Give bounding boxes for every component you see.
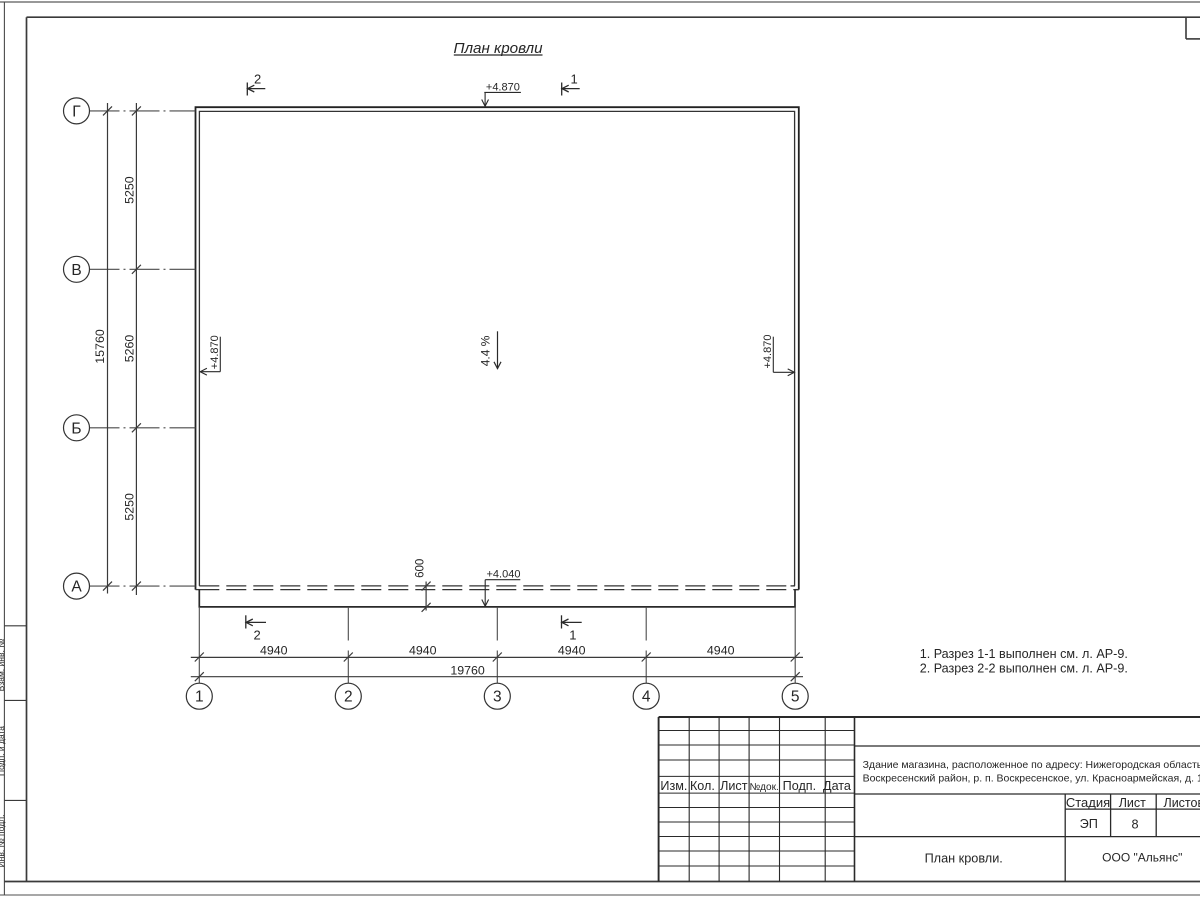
svg-text:600: 600 <box>414 559 426 578</box>
svg-text:Лист: Лист <box>1119 796 1146 810</box>
svg-text:4.4 %: 4.4 % <box>479 335 493 366</box>
svg-text:№док.: №док. <box>749 782 778 793</box>
svg-text:+4.870: +4.870 <box>209 335 221 369</box>
svg-text:+4.870: +4.870 <box>762 335 774 369</box>
svg-text:1. Разрез 1-1 выполнен см. л.: 1. Разрез 1-1 выполнен см. л. АР-9. <box>920 647 1128 661</box>
svg-text:19760: 19760 <box>450 663 485 677</box>
svg-text:Лист: Лист <box>720 779 748 793</box>
svg-text:5250: 5250 <box>123 493 137 521</box>
svg-text:3: 3 <box>493 689 502 706</box>
svg-text:4940: 4940 <box>260 644 288 658</box>
svg-text:+4.870: +4.870 <box>486 82 520 94</box>
svg-text:Здание магазина, расположенное: Здание магазина, расположенное по адресу… <box>863 759 1200 771</box>
svg-text:4940: 4940 <box>558 644 586 658</box>
svg-text:Воскресенский район, р. п. Вос: Воскресенский район, р. п. Воскресенское… <box>863 772 1200 784</box>
svg-text:Взам. инв. №: Взам. инв. № <box>0 639 6 692</box>
svg-text:5: 5 <box>791 689 800 706</box>
svg-text:План кровли.: План кровли. <box>925 852 1003 866</box>
svg-text:2: 2 <box>344 689 353 706</box>
svg-text:ООО "Альянс": ООО "Альянс" <box>1102 851 1182 865</box>
svg-text:4: 4 <box>642 689 651 706</box>
svg-text:В: В <box>71 262 81 279</box>
svg-text:Стадия: Стадия <box>1066 795 1110 810</box>
svg-text:8: 8 <box>1131 817 1138 831</box>
svg-text:ЭП: ЭП <box>1080 817 1098 831</box>
svg-text:Инв. № подл.: Инв. № подл. <box>0 815 6 868</box>
svg-text:1: 1 <box>571 72 578 87</box>
svg-text:Подп. и дата: Подп. и дата <box>0 726 6 776</box>
svg-text:Г: Г <box>72 103 81 120</box>
svg-text:Кол.: Кол. <box>690 779 715 793</box>
svg-text:15760: 15760 <box>93 329 107 364</box>
svg-text:4940: 4940 <box>707 644 735 658</box>
svg-text:1: 1 <box>569 628 576 643</box>
svg-text:1: 1 <box>195 689 204 706</box>
svg-text:Б: Б <box>71 420 81 437</box>
svg-text:А: А <box>71 579 82 596</box>
svg-text:Изм.: Изм. <box>660 779 687 793</box>
svg-text:2: 2 <box>254 72 261 87</box>
svg-text:+4.040: +4.040 <box>487 569 521 581</box>
svg-text:2: 2 <box>254 628 261 643</box>
svg-text:5250: 5250 <box>123 176 137 204</box>
svg-text:Листов: Листов <box>1164 796 1200 810</box>
svg-text:Дата: Дата <box>823 779 851 793</box>
svg-text:4940: 4940 <box>409 644 437 658</box>
svg-text:5260: 5260 <box>123 335 137 363</box>
svg-text:Подп.: Подп. <box>783 779 816 793</box>
svg-text:2. Разрез 2-2 выполнен см. л.: 2. Разрез 2-2 выполнен см. л. АР-9. <box>920 661 1128 675</box>
